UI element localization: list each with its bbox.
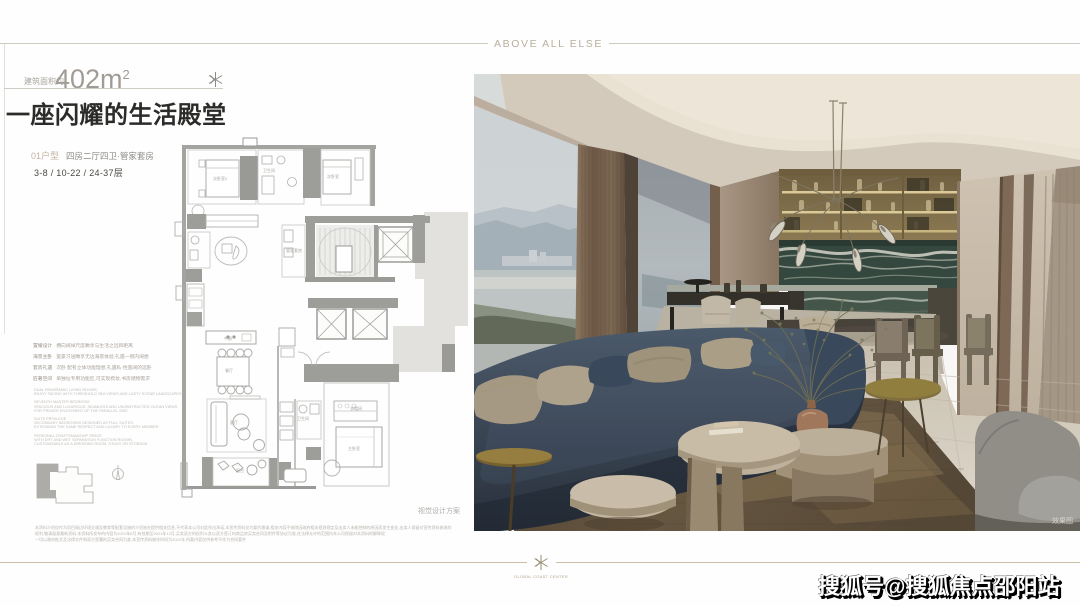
- svg-text:效果图: 效果图: [1052, 516, 1073, 525]
- svg-text:阳台: 阳台: [236, 467, 244, 473]
- svg-text:衣帽间: 衣帽间: [350, 405, 362, 411]
- svg-text:客厅: 客厅: [230, 419, 238, 425]
- svg-text:餐厅: 餐厅: [225, 367, 233, 373]
- svg-text:次卧室: 次卧室: [327, 173, 339, 179]
- svg-text:主卧室: 主卧室: [348, 445, 360, 451]
- svg-text:卫生间: 卫生间: [263, 167, 275, 173]
- svg-text:卫生间: 卫生间: [297, 415, 309, 421]
- svg-text:次卧室2: 次卧室2: [213, 175, 228, 181]
- svg-text:中厨: 中厨: [224, 335, 232, 341]
- svg-text:管家套房: 管家套房: [286, 247, 302, 253]
